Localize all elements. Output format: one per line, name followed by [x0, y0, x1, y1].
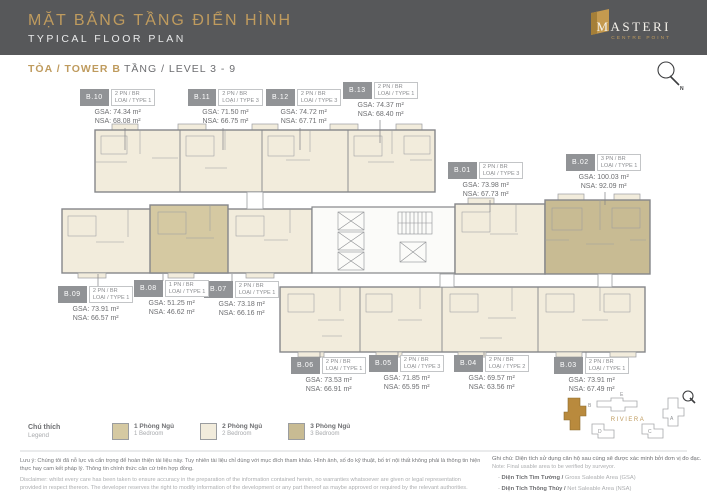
disclaimer-en: Disclaimer: whilst every care has been t…	[20, 476, 482, 492]
disclaimer-vi: Lưu ý: Chúng tôi đã nỗ lực và cẩn trọng …	[20, 457, 482, 473]
unit-gsa: GSA: 71.85 m²	[384, 375, 430, 382]
logo-name: MASTERI	[596, 19, 671, 35]
unit-badge: B.13	[343, 82, 372, 99]
unit-badge: B.02	[566, 154, 595, 171]
unit-gsa: GSA: 74.37 m²	[358, 102, 404, 109]
unit-type-box: 2 PN / BRLOẠI / TYPE 3	[479, 162, 524, 179]
unit-type-box: 2 PN / BRLOẠI / TYPE 1	[585, 357, 630, 374]
unit-badge: B.09	[58, 286, 87, 303]
unit-badge: B.01	[448, 162, 477, 179]
unit-nsa: NSA: 68.40 m²	[358, 111, 404, 118]
notes-block: Ghi chú: Diện tích sử dụng căn hộ sau cù…	[492, 455, 706, 493]
unit-label-B.08: B.081 PN / BRLOẠI / TYPE 1GSA: 51.25 m²N…	[134, 280, 209, 316]
unit-label-B.09: B.092 PN / BRLOẠI / TYPE 1GSA: 73.91 m²N…	[58, 286, 133, 322]
keyplan-district-label: RIVIERA	[611, 417, 646, 423]
wing-top	[95, 124, 435, 192]
legend-item: 1 Phòng Ngủ1 Bedroom	[112, 423, 174, 440]
svg-text:C: C	[648, 429, 652, 435]
unit-nsa: NSA: 67.73 m²	[463, 191, 509, 198]
unit-gsa: GSA: 73.98 m²	[463, 182, 509, 189]
unit-badge: B.08	[134, 280, 163, 297]
unit-badge: B.03	[554, 357, 583, 374]
north-compass-icon: N	[658, 62, 684, 92]
unit-label-B.01: B.012 PN / BRLOẠI / TYPE 3GSA: 73.98 m²N…	[448, 162, 523, 198]
unit-label-B.10: B.102 PN / BRLOẠI / TYPE 1GSA: 74.34 m²N…	[80, 89, 155, 125]
unit-badge: B.12	[266, 89, 295, 106]
unit-nsa: NSA: 63.56 m²	[469, 384, 515, 391]
unit-label-B.13: B.132 PN / BRLOẠI / TYPE 1GSA: 74.37 m²N…	[343, 82, 418, 118]
svg-text:B: B	[588, 403, 592, 409]
legend-item: 2 Phòng Ngủ2 Bedroom	[200, 423, 262, 440]
unit-nsa: NSA: 67.49 m²	[569, 386, 615, 393]
corridor-connector	[440, 274, 454, 287]
unit-gsa: GSA: 74.34 m²	[95, 109, 141, 116]
unit-type-box: 2 PN / BRLOẠI / TYPE 1	[235, 281, 280, 298]
note-title-en: Note: Final usable area to be verified b…	[492, 464, 706, 472]
legend-title: Chú thích Legend	[28, 424, 60, 439]
legend-items: 1 Phòng Ngủ1 Bedroom2 Phòng Ngủ2 Bedroom…	[112, 423, 350, 440]
svg-text:D: D	[598, 429, 602, 435]
unit-gsa: GSA: 71.50 m²	[202, 109, 248, 116]
unit-nsa: NSA: 92.09 m²	[581, 183, 627, 190]
note-items: - Diện Tích Tim Tường / Gross Saleable A…	[492, 474, 706, 493]
unit-gsa: GSA: 73.18 m²	[219, 301, 265, 308]
unit-label-B.11: B.112 PN / BRLOẠI / TYPE 3GSA: 71.50 m²N…	[188, 89, 263, 125]
unit-badge: B.11	[188, 89, 216, 106]
legend-title-en: Legend	[28, 432, 60, 439]
svg-text:A: A	[670, 416, 674, 422]
unit-type-box: 2 PN / BRLOẠI / TYPE 1	[89, 286, 134, 303]
floor-plan-drawing: N E B A D C RIVIERA	[0, 0, 707, 500]
wing-right	[455, 194, 650, 274]
unit-badge: B.05	[369, 355, 398, 372]
unit-gsa: GSA: 74.72 m²	[281, 109, 327, 116]
unit-label-B.02: B.023 PN / BRLOẠI / TYPE 1GSA: 100.03 m²…	[566, 154, 641, 190]
unit-nsa: NSA: 66.57 m²	[73, 315, 119, 322]
unit-gsa: GSA: 51.25 m²	[149, 300, 195, 307]
unit-label-B.07: B.072 PN / BRLOẠI / TYPE 1GSA: 73.18 m²N…	[204, 281, 279, 317]
note-title-vi: Ghi chú: Diện tích sử dụng căn hộ sau cù…	[492, 455, 706, 463]
unit-label-B.12: B.122 PN / BRLOẠI / TYPE 3GSA: 74.72 m²N…	[266, 89, 341, 125]
unit-nsa: NSA: 66.16 m²	[219, 310, 265, 317]
unit-type-box: 2 PN / BRLOẠI / TYPE 3	[400, 355, 445, 372]
unit-type-box: 2 PN / BRLOẠI / TYPE 1	[322, 357, 367, 374]
note-item: - Diện Tích Tim Tường / Gross Saleable A…	[498, 474, 706, 483]
unit-label-B.05: B.052 PN / BRLOẠI / TYPE 3GSA: 71.85 m²N…	[369, 355, 444, 391]
compass-n-label: N	[680, 86, 684, 92]
unit-nsa: NSA: 66.75 m²	[202, 118, 248, 125]
unit-nsa: NSA: 68.08 m²	[95, 118, 141, 125]
corridor-connector	[247, 192, 263, 209]
legend-swatch	[200, 423, 217, 440]
unit-type-box: 1 PN / BRLOẠI / TYPE 1	[165, 280, 210, 297]
unit-label-B.03: B.032 PN / BRLOẠI / TYPE 1GSA: 73.91 m²N…	[554, 357, 629, 393]
wing-left	[62, 205, 312, 278]
legend-item: 3 Phòng Ngủ3 Bedroom	[288, 423, 350, 440]
unit-nsa: NSA: 66.91 m²	[306, 386, 352, 393]
unit-label-B.06: B.062 PN / BRLOẠI / TYPE 1GSA: 73.53 m²N…	[291, 357, 366, 393]
unit-gsa: GSA: 73.91 m²	[569, 377, 615, 384]
unit-badge: B.10	[80, 89, 109, 106]
legend-swatch	[112, 423, 129, 440]
unit-type-box: 2 PN / BRLOẠI / TYPE 2	[485, 355, 530, 372]
unit-badge: B.04	[454, 355, 483, 372]
note-item: - Diện Tích Thông Thủy / Net Saleable Ar…	[498, 485, 706, 494]
unit-nsa: NSA: 65.95 m²	[384, 384, 430, 391]
unit-gsa: GSA: 100.03 m²	[579, 174, 629, 181]
unit-gsa: GSA: 73.91 m²	[73, 306, 119, 313]
unit-label-B.04: B.042 PN / BRLOẠI / TYPE 2GSA: 69.57 m²N…	[454, 355, 529, 391]
unit-badge: B.06	[291, 357, 320, 374]
core-lifts-stairs	[312, 207, 455, 273]
key-plan: E B A D C RIVIERA	[564, 391, 695, 438]
unit-nsa: NSA: 67.71 m²	[281, 118, 327, 125]
unit-nsa: NSA: 46.62 m²	[149, 309, 195, 316]
unit-type-box: 2 PN / BRLOẠI / TYPE 1	[374, 82, 419, 99]
unit-type-box: 3 PN / BRLOẠI / TYPE 1	[597, 154, 642, 171]
unit-gsa: GSA: 73.53 m²	[306, 377, 352, 384]
wing-bottom	[280, 287, 645, 357]
unit-type-box: 2 PN / BRLOẠI / TYPE 1	[111, 89, 156, 106]
unit-gsa: GSA: 69.57 m²	[469, 375, 515, 382]
disclaimer-block: Lưu ý: Chúng tôi đã nỗ lực và cẩn trọng …	[20, 457, 482, 492]
unit-type-box: 2 PN / BRLOẠI / TYPE 3	[218, 89, 263, 106]
floor-plan-page: MẶT BẰNG TẦNG ĐIỂN HÌNH TYPICAL FLOOR PL…	[0, 0, 707, 500]
unit-type-box: 2 PN / BRLOẠI / TYPE 3	[297, 89, 342, 106]
legend-title-vi: Chú thích	[28, 424, 60, 431]
legend-swatch	[288, 423, 305, 440]
corridor-connector	[598, 274, 612, 287]
